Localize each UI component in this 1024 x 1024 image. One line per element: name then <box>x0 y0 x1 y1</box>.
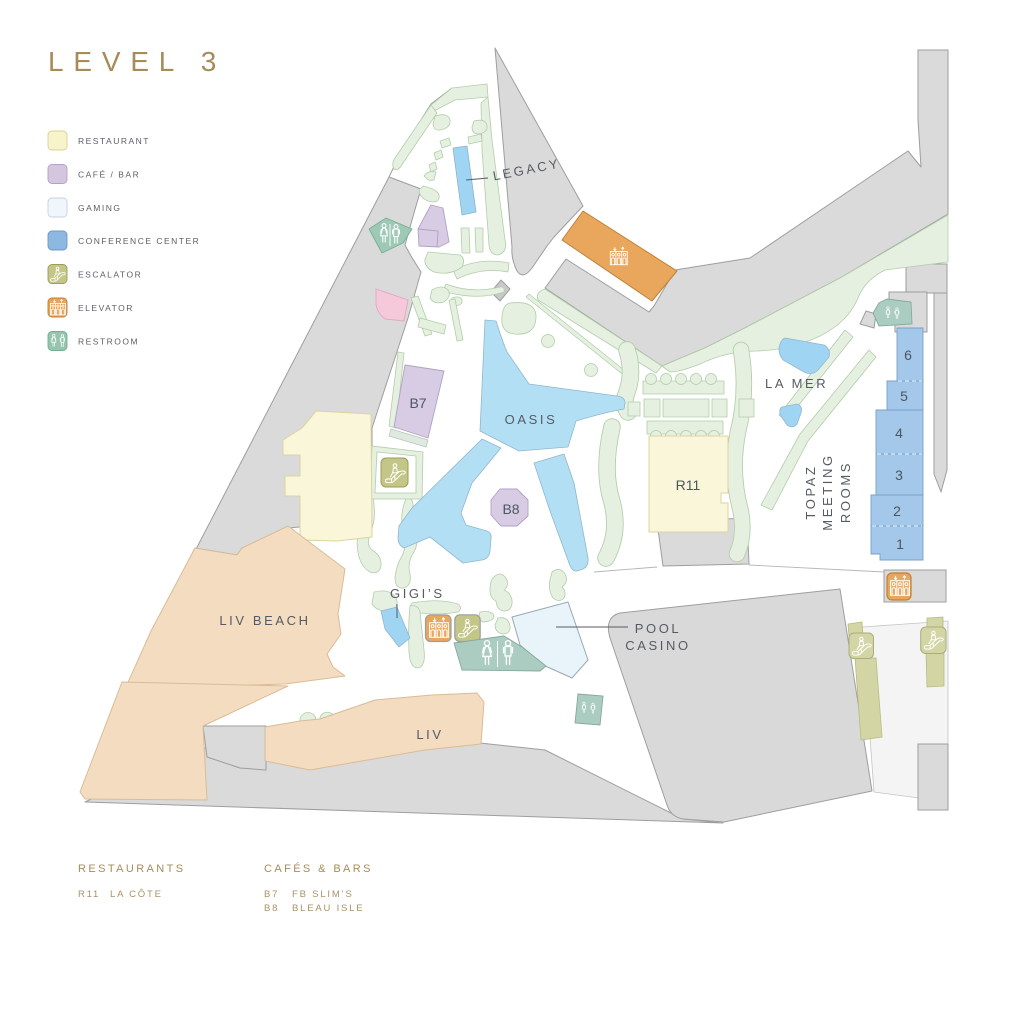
svg-text:CAFÉS & BARS: CAFÉS & BARS <box>264 862 373 875</box>
svg-text:RESTAURANTS: RESTAURANTS <box>78 863 185 875</box>
svg-text:GAMING: GAMING <box>78 203 121 213</box>
svg-text:B8: B8 <box>264 903 279 914</box>
svg-text:CAFÉ / BAR: CAFÉ / BAR <box>78 170 140 180</box>
svg-text:R11: R11 <box>78 889 100 900</box>
svg-text:ESCALATOR: ESCALATOR <box>78 270 142 280</box>
svg-text:LA CÔTE: LA CÔTE <box>110 889 163 900</box>
svg-text:LIV BEACH: LIV BEACH <box>219 613 310 628</box>
svg-text:TOPAZ: TOPAZ <box>803 464 818 519</box>
svg-text:B7: B7 <box>264 889 279 900</box>
svg-text:6: 6 <box>904 347 912 363</box>
svg-text:POOL: POOL <box>635 621 682 636</box>
svg-text:GIGI’S: GIGI’S <box>390 586 445 601</box>
svg-text:B8: B8 <box>502 501 519 517</box>
svg-text:R11: R11 <box>676 477 701 493</box>
svg-text:1: 1 <box>896 536 904 552</box>
svg-text:B7: B7 <box>409 395 426 411</box>
svg-text:5: 5 <box>900 388 908 404</box>
svg-text:4: 4 <box>895 425 903 441</box>
svg-text:CONFERENCE CENTER: CONFERENCE CENTER <box>78 236 200 246</box>
svg-text:MEETING: MEETING <box>820 453 835 530</box>
svg-text:OASIS: OASIS <box>505 412 558 427</box>
svg-text:RESTAURANT: RESTAURANT <box>78 136 150 146</box>
svg-text:LEVEL 3: LEVEL 3 <box>48 46 226 77</box>
svg-text:RESTROOM: RESTROOM <box>78 337 139 347</box>
svg-text:BLEAU ISLE: BLEAU ISLE <box>292 903 364 914</box>
svg-text:ROOMS: ROOMS <box>838 461 853 523</box>
svg-text:LIV: LIV <box>416 727 443 742</box>
svg-text:3: 3 <box>895 467 903 483</box>
svg-text:ELEVATOR: ELEVATOR <box>78 303 134 313</box>
svg-text:LA MER: LA MER <box>765 376 828 391</box>
svg-text:2: 2 <box>893 503 901 519</box>
svg-text:FB SLIM’S: FB SLIM’S <box>292 889 354 900</box>
svg-text:CASINO: CASINO <box>625 638 690 653</box>
